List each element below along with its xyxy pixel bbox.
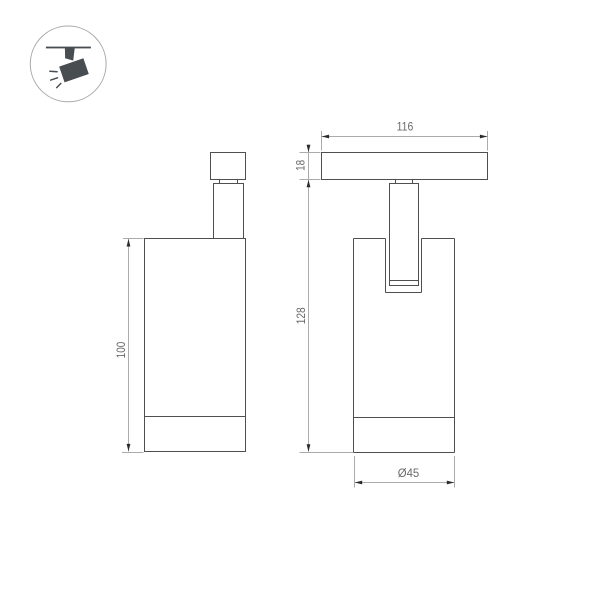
svg-text:116: 116	[397, 120, 414, 134]
svg-text:Ø45: Ø45	[398, 466, 420, 480]
svg-text:18: 18	[293, 160, 307, 171]
svg-text:128: 128	[294, 307, 308, 324]
svg-text:100: 100	[114, 342, 128, 359]
